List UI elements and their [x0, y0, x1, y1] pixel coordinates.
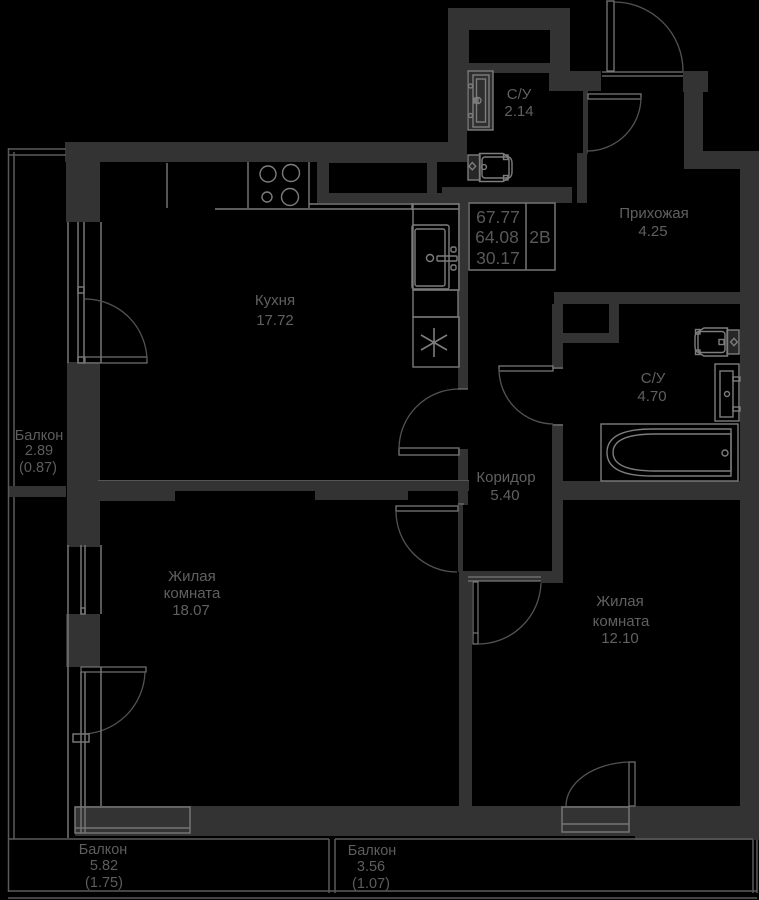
svg-text:(0.87): (0.87) — [19, 460, 57, 476]
svg-text:67.77: 67.77 — [476, 207, 520, 227]
svg-text:3.56: 3.56 — [357, 859, 385, 875]
svg-text:Кухня: Кухня — [255, 292, 295, 309]
svg-text:Балкон: Балкон — [15, 428, 64, 444]
svg-text:комната: комната — [593, 613, 650, 630]
svg-text:64.08: 64.08 — [475, 227, 519, 247]
svg-text:2В: 2В — [529, 227, 550, 247]
svg-text:18.07: 18.07 — [172, 602, 210, 619]
svg-text:Жилая: Жилая — [168, 568, 215, 585]
svg-text:30.17: 30.17 — [476, 248, 520, 268]
svg-text:Балкон: Балкон — [79, 842, 128, 858]
svg-text:5.82: 5.82 — [90, 858, 118, 874]
svg-text:17.72: 17.72 — [256, 312, 294, 329]
svg-text:Балкон: Балкон — [348, 843, 397, 859]
svg-text:(1.75): (1.75) — [85, 875, 123, 891]
svg-text:С/У: С/У — [507, 86, 532, 103]
svg-text:С/У: С/У — [641, 370, 666, 387]
svg-text:2.89: 2.89 — [25, 443, 53, 459]
svg-text:комната: комната — [164, 585, 221, 602]
svg-text:12.10: 12.10 — [601, 630, 639, 647]
svg-text:(1.07): (1.07) — [352, 876, 390, 892]
svg-text:Жилая: Жилая — [596, 593, 643, 610]
svg-text:Коридор: Коридор — [476, 469, 535, 486]
svg-text:2.14: 2.14 — [504, 103, 533, 120]
svg-text:4.70: 4.70 — [637, 388, 666, 405]
svg-text:5.40: 5.40 — [490, 487, 519, 504]
svg-text:Прихожая: Прихожая — [619, 205, 689, 222]
svg-text:4.25: 4.25 — [638, 223, 667, 240]
